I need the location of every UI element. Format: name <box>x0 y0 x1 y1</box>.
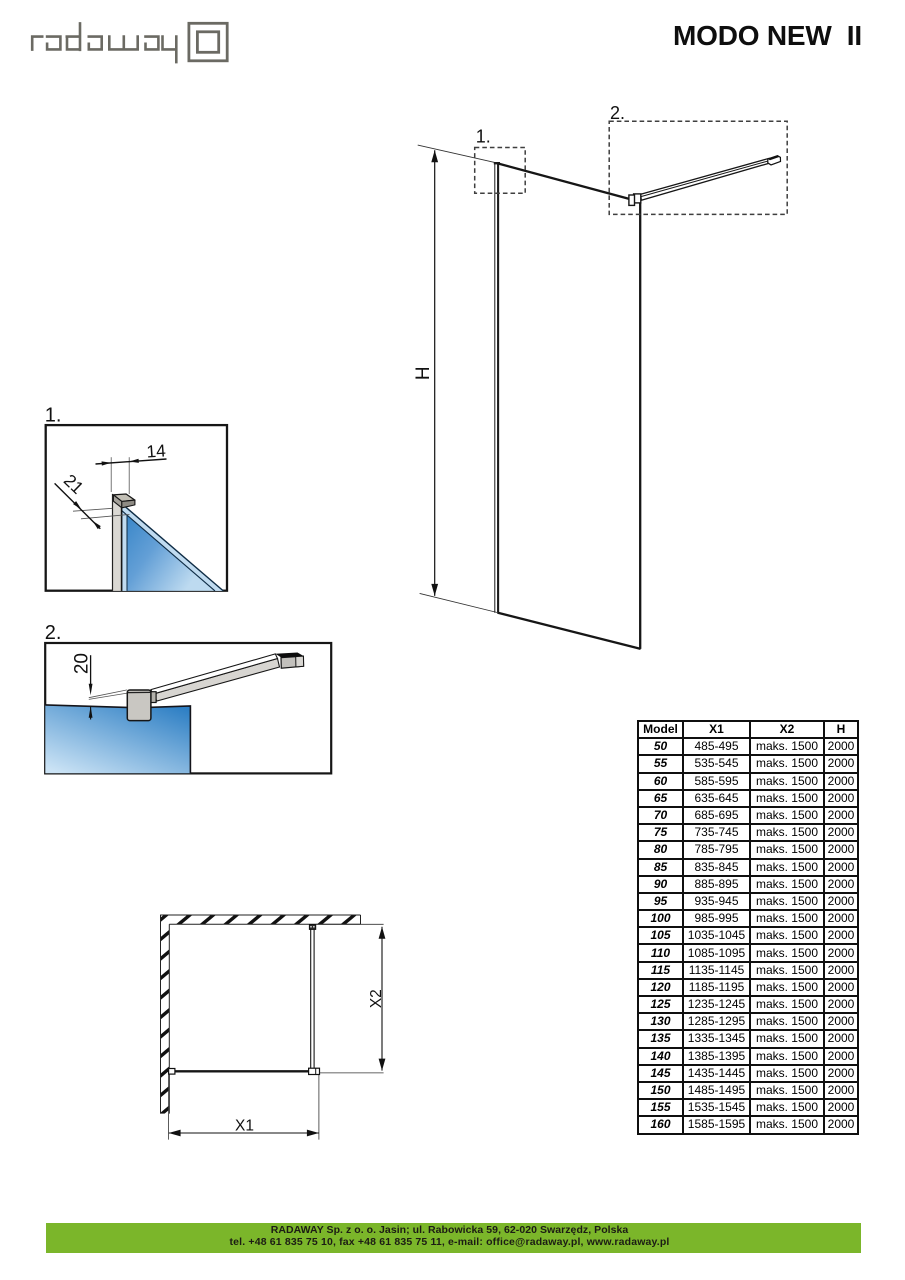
svg-text:1.: 1. <box>476 127 491 147</box>
svg-text:X2: X2 <box>368 989 385 1008</box>
svg-text:H: H <box>413 366 434 380</box>
svg-text:14: 14 <box>146 440 167 461</box>
svg-text:2.: 2. <box>610 103 625 123</box>
svg-text:2.: 2. <box>45 622 62 644</box>
svg-text:X1: X1 <box>235 1118 254 1135</box>
svg-text:1.: 1. <box>45 404 62 426</box>
svg-text:20: 20 <box>72 653 93 674</box>
